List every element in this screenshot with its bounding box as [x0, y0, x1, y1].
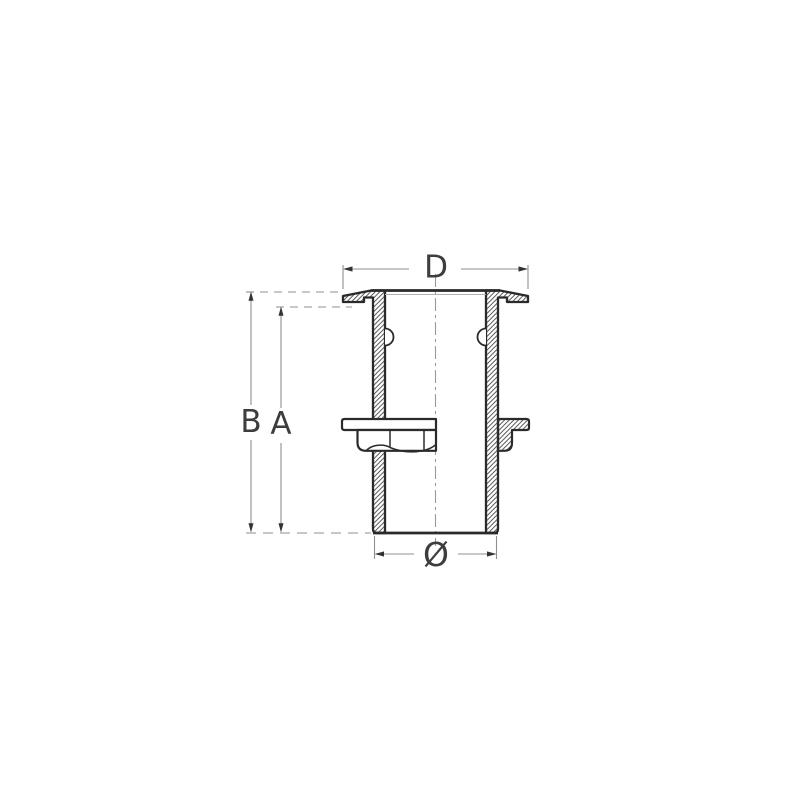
dimension-label-b: B	[240, 404, 261, 440]
drawing-page: D B A Ø	[0, 0, 800, 800]
bore-relief-left	[385, 329, 394, 346]
dimension-label-d: D	[424, 250, 448, 286]
drawing-background	[0, 0, 800, 800]
thru-hull-fitting-drawing: D B A Ø	[0, 0, 800, 800]
dimension-label-diameter: Ø	[423, 535, 449, 574]
bore-relief-right	[478, 329, 487, 346]
dimension-label-a: A	[270, 406, 291, 442]
nut-flange-side-view	[342, 419, 436, 430]
